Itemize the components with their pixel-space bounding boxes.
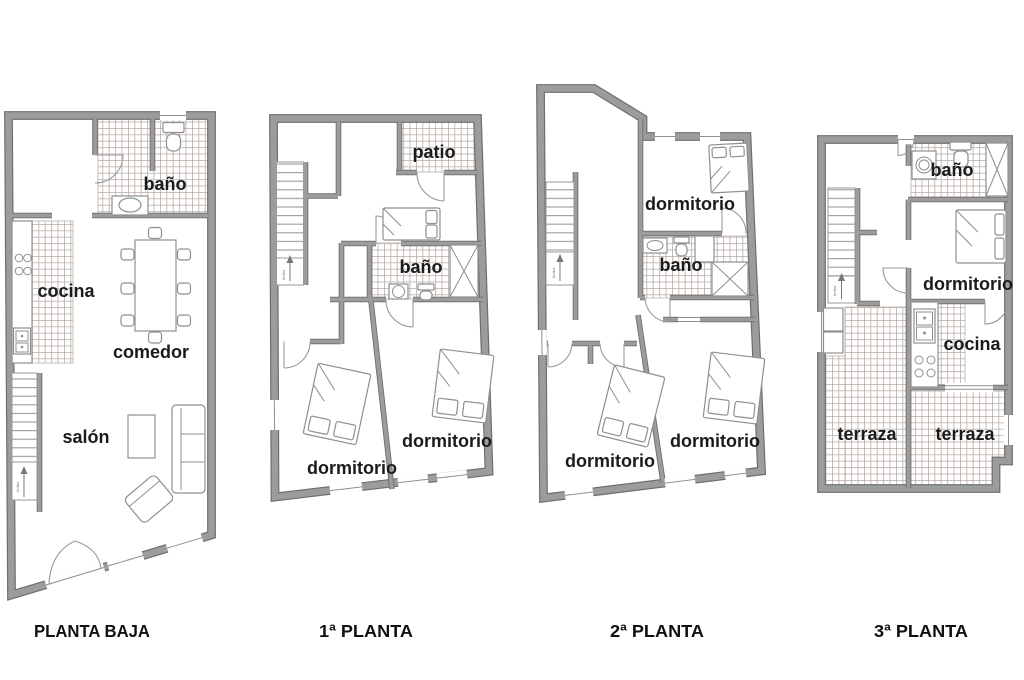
sofa-icon [172,405,205,493]
room-label-bano: baño [931,160,974,180]
kitchen-sink-icon [14,328,31,354]
floor-title-3a-planta: 3ª PLANTA [874,621,968,641]
stairs-icon: Arriba [277,162,304,285]
sink-icon [643,238,667,253]
chair-icon [178,315,191,326]
floor-title-1a-planta: 1ª PLANTA [319,621,413,641]
window [565,492,593,495]
stairs-icon: Arriba [828,188,855,303]
chair-icon [178,249,191,260]
stair-note: Arriba [281,269,286,280]
chair-icon [149,228,162,239]
kitchen-sink-icon [914,309,935,343]
stair-note: Arriba [15,481,20,492]
chair-icon [121,283,134,294]
bed-icon [709,143,749,193]
floor-plan-2a-planta: Arriba dormitorio baño dormitorio dormit… [540,89,765,642]
coffee-table-icon [128,415,155,458]
chair-icon [178,283,191,294]
room-label-dormitorio: dormitorio [923,274,1013,294]
room-label-bano: baño [660,255,703,275]
room-label-cocina: cocina [943,334,1001,354]
room-label-dormitorio-left: dormitorio [565,451,655,471]
bed-icon [956,210,1006,263]
stair-note: Arriba [832,285,837,296]
toilet-icon [674,237,689,256]
tiled-floor-terraza-left [823,356,845,487]
floor-title-2a-planta: 2ª PLANTA [610,621,704,641]
sink-icon [112,196,148,215]
chair-icon [121,249,134,260]
room-label-dormitorio-right: dormitorio [670,431,760,451]
window [725,473,746,476]
room-label-cocina: cocina [37,281,95,301]
room-label-dormitorio-right: dormitorio [402,431,492,451]
room-label-patio: patio [413,142,456,162]
room-label-bano: baño [144,174,187,194]
floor-plan-planta-baja: Arriba baño cocina comedor salón PLANTA … [9,116,212,642]
stairs-icon: Arriba [12,373,37,500]
window [945,386,993,390]
room-label-dormitorio-top: dormitorio [645,194,735,214]
room-label-comedor: comedor [113,342,189,362]
tiled-floor-terraza-left [845,307,906,487]
window [330,487,362,491]
floor-plan-3a-planta: Arriba baño dormitorio cocina terraza te… [822,140,1014,642]
floor-plan-1a-planta: Arriba patio baño dormitorio dormitorio … [274,119,494,642]
window [665,479,695,483]
shower-icon [712,262,748,296]
cabinet [824,308,844,331]
room-label-dormitorio-left: dormitorio [307,458,397,478]
room-label-bano: baño [400,257,443,277]
shower-icon [450,245,478,297]
sink-icon [389,284,408,299]
room-label-terraza-right: terraza [935,424,995,444]
chair-icon [121,315,134,326]
bed-icon [383,208,440,240]
floor-title-planta-baja: PLANTA BAJA [34,621,150,641]
stairs-icon: Arriba [546,182,574,285]
floor-plans-image: Arriba baño cocina comedor salón PLANTA … [0,0,1024,680]
room-label-salon: salón [62,427,109,447]
floor-plans-svg: Arriba baño cocina comedor salón PLANTA … [0,0,1024,680]
cabinet [824,332,844,353]
shower-icon [986,143,1008,196]
bed-icon [703,352,765,424]
window [398,479,428,483]
window [437,475,467,479]
room-label-terraza-left: terraza [837,424,897,444]
stair-note: Arriba [551,267,556,278]
bed-icon [432,349,494,423]
